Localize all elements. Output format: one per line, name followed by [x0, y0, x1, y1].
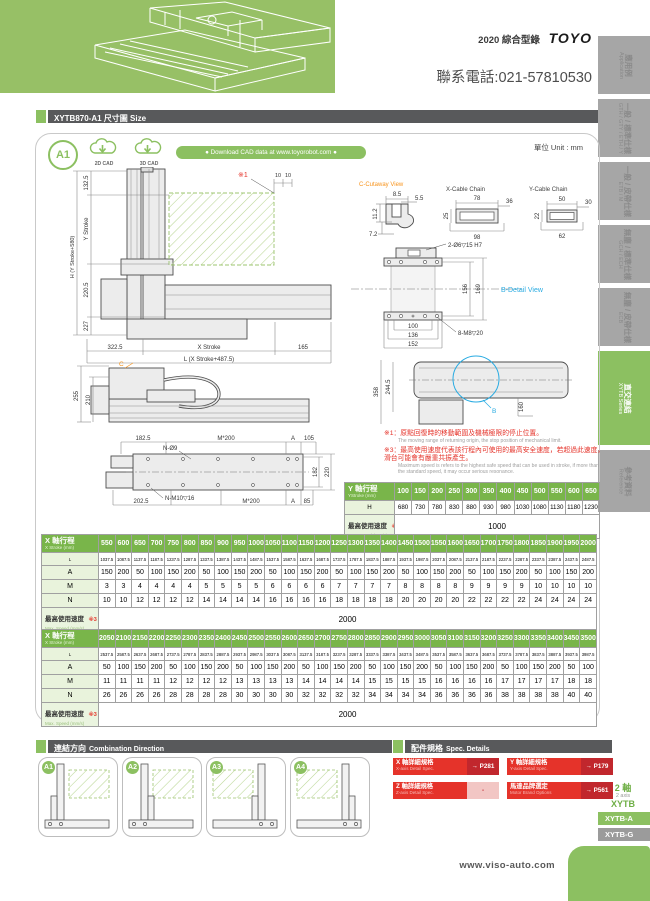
a-dimension-value: 150 — [231, 566, 248, 580]
l-dimension-value: 2387.5 — [547, 553, 564, 566]
n-count-value: 30 — [231, 689, 248, 703]
dim-label: 98 — [474, 235, 481, 241]
dim-label: 156 — [463, 283, 469, 294]
a-dimension-value: 50 — [231, 661, 248, 675]
combination-title-zh: 連結方向 — [54, 744, 86, 753]
dim-label: 10 — [275, 173, 281, 179]
tab-label-zh: 一般 / 皮帶仕樣 — [623, 165, 631, 216]
a-dimension-value: 150 — [132, 661, 149, 675]
l-dimension-value: 2587.5 — [115, 648, 132, 661]
a-dimension-value: 100 — [447, 661, 464, 675]
m-count-value: 13 — [264, 675, 281, 689]
dim-label: 255 — [74, 390, 80, 401]
tab-label-zh: 無塵 / 皮帶仕樣 — [623, 291, 631, 342]
n-count-value: 18 — [364, 594, 381, 608]
l-dimension-value: 1887.5 — [381, 553, 398, 566]
plan-view-drawing: 182.5 M*200 A 105 N-Ø9 182 220 202.5 N-M… — [51, 432, 351, 514]
dim-label: 2-Ø6▽15 H7 — [448, 243, 483, 249]
hero-product-image — [0, 0, 335, 93]
spec-section-header: 配件規格Spec. Details — [405, 740, 612, 753]
l-dimension-value: 1137.5 — [132, 553, 149, 566]
a-dimension-value: 200 — [447, 566, 464, 580]
n-count-value: 20 — [430, 594, 447, 608]
row-label-n: N — [42, 689, 99, 703]
m-count-value: 12 — [215, 675, 232, 689]
m-count-value: 7 — [381, 580, 398, 594]
n-count-value: 26 — [99, 689, 116, 703]
n-count-value: 16 — [298, 594, 315, 608]
m-count-value: 11 — [99, 675, 116, 689]
y-stroke-value: 500 — [531, 483, 548, 501]
l-dimension-value: 2487.5 — [580, 553, 597, 566]
a-dimension-value: 50 — [364, 661, 381, 675]
dim-label: 105 — [304, 436, 315, 442]
x-stroke-value: 1700 — [480, 535, 497, 553]
n-count-value: 26 — [148, 689, 165, 703]
x-stroke-value: 750 — [165, 535, 182, 553]
x-stroke-value: 2250 — [165, 630, 182, 648]
a-dimension-value: 100 — [215, 566, 232, 580]
x-stroke-value: 1800 — [513, 535, 530, 553]
l-dimension-value: 2637.5 — [132, 648, 149, 661]
sidebar-tab-gth[interactable]: 一般 / 標準仕樣GTH / GTY / ETH / Y — [598, 99, 650, 157]
l-dimension-value: 3637.5 — [464, 648, 481, 661]
h-dimension-value: 780 — [429, 501, 446, 515]
a-dimension-value: 50 — [397, 566, 414, 580]
row-label-l: L — [42, 553, 99, 566]
n-count-value: 32 — [314, 689, 331, 703]
y-cable-chain-drawing: Y-Cable Chain 50 30 22 62 — [523, 179, 599, 251]
l-dimension-value: 3437.5 — [397, 648, 414, 661]
cad-3d-download[interactable]: 3D CAD — [129, 138, 169, 167]
a-dimension-value: 50 — [132, 566, 149, 580]
tab-label-zh: 無塵 / 標準仕樣 — [623, 228, 631, 279]
m-count-value: 12 — [181, 675, 198, 689]
h-dimension-value: 1080 — [531, 501, 548, 515]
dim-label: N-Ø9 — [163, 446, 178, 452]
spec-link-z-axis[interactable]: Z 軸詳細規格Z-axis Detail Spec. - — [393, 782, 499, 799]
l-dimension-value: 3037.5 — [264, 648, 281, 661]
m-count-value: 7 — [331, 580, 348, 594]
n-count-value: 12 — [148, 594, 165, 608]
m-count-value: 17 — [497, 675, 514, 689]
m-count-value: 8 — [414, 580, 431, 594]
series-name: XYTB — [600, 799, 646, 810]
m-count-value: 6 — [298, 580, 315, 594]
dimension-panel: A1 2D CAD 3D CAD ● Download CAD data at … — [35, 133, 600, 723]
dim-label: 132.5 — [84, 175, 90, 191]
m-count-value: 3 — [99, 580, 116, 594]
m-count-value: 16 — [447, 675, 464, 689]
l-dimension-value: 1987.5 — [414, 553, 431, 566]
m-count-value: 8 — [430, 580, 447, 594]
h-dimension-value: 1130 — [548, 501, 565, 515]
n-count-value: 16 — [314, 594, 331, 608]
dim-label: 50 — [559, 197, 566, 203]
sidebar-tab-application[interactable]: 應用例Application — [598, 36, 650, 94]
x-stroke-value: 3500 — [580, 630, 597, 648]
m-count-value: 11 — [148, 675, 165, 689]
x-stroke-value: 2850 — [364, 630, 381, 648]
a-dimension-value: 150 — [331, 661, 348, 675]
side-view-drawing: 255 210 C — [51, 360, 341, 432]
n-count-value: 10 — [99, 594, 116, 608]
dim-label: M*200 — [217, 436, 235, 442]
x-stroke-value: 2650 — [298, 630, 315, 648]
dim-label: 210 — [86, 394, 92, 405]
x-stroke-value: 2750 — [331, 630, 348, 648]
x-stroke-value: 3200 — [480, 630, 497, 648]
l-dimension-value: 3587.5 — [447, 648, 464, 661]
m-count-value: 15 — [414, 675, 431, 689]
m-count-value: 5 — [248, 580, 265, 594]
download-cad-banner[interactable]: ● Download CAD data at www.toyorobot.com… — [176, 146, 366, 159]
x-stroke-value: 2900 — [381, 630, 398, 648]
l-dimension-value: 3987.5 — [580, 648, 597, 661]
x-stroke-value: 900 — [215, 535, 232, 553]
l-dimension-value: 3187.5 — [314, 648, 331, 661]
a-dimension-value: 50 — [430, 661, 447, 675]
combination-card-a1[interactable]: A1 — [38, 757, 118, 837]
dim-label: 182 — [313, 466, 319, 477]
x-stroke-table-1: X 軸行程X Stroke (mm) 550600650700750800850… — [41, 534, 597, 632]
n-count-value: 24 — [580, 594, 597, 608]
n-count-value: 16 — [264, 594, 281, 608]
a-dimension-value: 200 — [215, 661, 232, 675]
a-dimension-value: 200 — [347, 661, 364, 675]
x-stroke-value: 1950 — [563, 535, 580, 553]
m-count-value: 9 — [513, 580, 530, 594]
m-count-value: 3 — [115, 580, 132, 594]
n-count-value: 36 — [480, 689, 497, 703]
y-stroke-value: 400 — [497, 483, 514, 501]
dim-label: 160 — [519, 401, 525, 412]
n-count-value: 14 — [215, 594, 232, 608]
cloud-download-icon — [87, 138, 121, 158]
x-stroke-value: 3450 — [563, 630, 580, 648]
page-corner-tab — [568, 846, 650, 901]
spec-link-motor-brand[interactable]: 馬達品牌選定Motor Brand Options → P561 — [507, 782, 613, 799]
dim-label: 100 — [408, 324, 419, 330]
l-dimension-value: 3887.5 — [547, 648, 564, 661]
m-count-value: 16 — [430, 675, 447, 689]
n-count-value: 38 — [497, 689, 514, 703]
l-dimension-value: 1637.5 — [298, 553, 315, 566]
n-count-value: 22 — [464, 594, 481, 608]
note-mark: ※1： — [384, 430, 400, 437]
l-dimension-value: 1337.5 — [198, 553, 215, 566]
n-count-value: 22 — [480, 594, 497, 608]
l-dimension-value: 2737.5 — [165, 648, 182, 661]
row-label-n: N — [42, 594, 99, 608]
l-dimension-value: 1237.5 — [165, 553, 182, 566]
footnote-1: ※1：原點回復時的移動範圍及機械極限的停止位置。 The moving rang… — [384, 430, 606, 444]
h-dimension-value: 1230 — [582, 501, 599, 515]
a-dimension-value: 50 — [264, 566, 281, 580]
m-count-value: 14 — [314, 675, 331, 689]
combination-card-a4[interactable]: A4 — [290, 757, 370, 837]
l-dimension-value: 2437.5 — [563, 553, 580, 566]
dim-label: 10 — [285, 173, 291, 179]
n-count-value: 32 — [347, 689, 364, 703]
n-count-value: 32 — [331, 689, 348, 703]
a-dimension-value: 200 — [314, 566, 331, 580]
a-dimension-value: 100 — [381, 661, 398, 675]
m-count-value: 4 — [132, 580, 149, 594]
dim-label: 182.5 — [135, 436, 151, 442]
a-dimension-value: 150 — [99, 566, 116, 580]
x-stroke-value: 1450 — [397, 535, 414, 553]
l-dimension-value: 1287.5 — [181, 553, 198, 566]
n-count-value: 38 — [530, 689, 547, 703]
y-stroke-value: 300 — [463, 483, 480, 501]
a-dimension-value: 50 — [165, 661, 182, 675]
spec-link-y-axis[interactable]: Y 軸詳細規格Y-axis Detail Spec. → P179 — [507, 758, 613, 775]
n-count-value: 10 — [115, 594, 132, 608]
dim-label: 62 — [559, 234, 566, 240]
x-stroke-value: 2800 — [347, 630, 364, 648]
a-dimension-value: 200 — [148, 661, 165, 675]
a-dimension-value: 200 — [480, 661, 497, 675]
a-dimension-value: 150 — [397, 661, 414, 675]
n-count-value: 40 — [563, 689, 580, 703]
m-count-value: 8 — [397, 580, 414, 594]
tab-label-zh: 一般 / 標準仕樣 — [623, 102, 631, 153]
m-count-value: 16 — [464, 675, 481, 689]
m-count-value: 7 — [347, 580, 364, 594]
dim-label: 7.2 — [369, 232, 378, 238]
m-count-value: 10 — [563, 580, 580, 594]
b-callout-label: B — [492, 408, 496, 415]
x-stroke-value: 1650 — [464, 535, 481, 553]
n-count-value: 36 — [430, 689, 447, 703]
x-stroke-value: 2350 — [198, 630, 215, 648]
x-stroke-value: 2450 — [231, 630, 248, 648]
y-table-header: Y 軸行程YStroke (mm) — [345, 483, 395, 501]
dim-label: 85 — [304, 499, 311, 505]
l-dimension-value: 2287.5 — [513, 553, 530, 566]
dim-label: 169 — [476, 283, 482, 294]
l-dimension-value: 1437.5 — [231, 553, 248, 566]
y-stroke-value: 600 — [565, 483, 582, 501]
catalog-year-label: 2020 綜合型錄 — [478, 35, 540, 46]
spec-link-x-axis[interactable]: X 軸詳細規格X-axis Detail Spec. → P281 — [393, 758, 499, 775]
l-dimension-value: 3287.5 — [347, 648, 364, 661]
b-detail-drawing: 2-Ø6▽15 H7 156 169 100 136 152 8-M8▽20 B… — [346, 242, 601, 367]
x-stroke-value: 850 — [198, 535, 215, 553]
a-dimension-value: 150 — [464, 661, 481, 675]
n-count-value: 22 — [513, 594, 530, 608]
n-count-value: 30 — [281, 689, 298, 703]
a-dimension-value: 200 — [381, 566, 398, 580]
m-count-value: 6 — [264, 580, 281, 594]
a-dimension-value: 200 — [115, 566, 132, 580]
m-count-value: 13 — [248, 675, 265, 689]
combination-card-a2[interactable]: A2 — [122, 757, 202, 837]
x-stroke-value: 1850 — [530, 535, 547, 553]
sidebar-tab-gch[interactable]: 無塵 / 標準仕樣GCH / ECH — [598, 225, 650, 283]
x-stroke-value: 1400 — [381, 535, 398, 553]
x-stroke-value: 3400 — [547, 630, 564, 648]
a-dimension-value: 150 — [165, 566, 182, 580]
h-dimension-value: 680 — [395, 501, 412, 515]
m-count-value: 6 — [281, 580, 298, 594]
m-count-value: 12 — [198, 675, 215, 689]
dim-label: 322.5 — [107, 345, 123, 351]
x-stroke-value: 800 — [181, 535, 198, 553]
n-count-value: 34 — [381, 689, 398, 703]
row-label-a: A — [42, 566, 99, 580]
footnote-3: ※3：最高使用速度代表該行程內可使用的最高安全速度，若超過此速度，滑台可能會有嚴… — [384, 447, 606, 475]
tab-label-en: Application — [616, 52, 623, 79]
page-ref: → P179 — [581, 758, 613, 775]
dim-label: 136 — [408, 333, 419, 339]
m-count-value: 14 — [298, 675, 315, 689]
dim-label: 22 — [535, 212, 541, 219]
n-count-value: 28 — [215, 689, 232, 703]
n-count-value: 36 — [447, 689, 464, 703]
l-dimension-value: 2237.5 — [497, 553, 514, 566]
l-dimension-value: 1687.5 — [314, 553, 331, 566]
series-tab-xytb-g[interactable]: XYTB-G — [598, 828, 650, 841]
dim-label: 78 — [474, 196, 481, 202]
a-dimension-value: 150 — [198, 661, 215, 675]
x-stroke-value: 1500 — [414, 535, 431, 553]
m-count-value: 15 — [381, 675, 398, 689]
l-dimension-value: 3337.5 — [364, 648, 381, 661]
dim-label: 165 — [298, 345, 309, 351]
n-count-value: 28 — [165, 689, 182, 703]
m-count-value: 15 — [364, 675, 381, 689]
tab-label-zh: 參考資料 — [624, 466, 632, 496]
h-dimension-value: 880 — [463, 501, 480, 515]
m-count-value: 5 — [215, 580, 232, 594]
h-dimension-value: 1180 — [565, 501, 582, 515]
y-stroke-value: 250 — [446, 483, 463, 501]
n-count-value: 24 — [530, 594, 547, 608]
n-count-value: 34 — [364, 689, 381, 703]
combination-card-a3[interactable]: A3 — [206, 757, 286, 837]
row-label-m: M — [42, 675, 99, 689]
combination-title-en: Combination Direction — [89, 746, 164, 753]
x-stroke-value: 1150 — [298, 535, 315, 553]
tab-label-en: Reference — [617, 466, 624, 496]
section-accent-square — [36, 740, 46, 753]
m-count-value: 12 — [165, 675, 182, 689]
h-dimension-value: 730 — [412, 501, 429, 515]
l-dimension-value: 1037.5 — [99, 553, 116, 566]
m-count-value: 5 — [231, 580, 248, 594]
dim-label: 8-M8▽20 — [458, 331, 484, 337]
x-stroke-value: 2150 — [132, 630, 149, 648]
a-dimension-value: 200 — [513, 566, 530, 580]
n-count-value: 20 — [414, 594, 431, 608]
toyo-logo: TOYO — [549, 30, 592, 46]
x-stroke-value: 1900 — [547, 535, 564, 553]
a-dimension-value: 50 — [198, 566, 215, 580]
m-count-value: 10 — [547, 580, 564, 594]
y-stroke-value: 100 — [395, 483, 412, 501]
n-count-value: 18 — [347, 594, 364, 608]
y-stroke-value: 350 — [480, 483, 497, 501]
c-section-label: C — [119, 361, 124, 368]
page-ref: → P281 — [467, 758, 499, 775]
n-count-value: 24 — [563, 594, 580, 608]
x-stroke-value: 2300 — [181, 630, 198, 648]
dim-label: 30 — [585, 200, 592, 206]
a-dimension-value: 200 — [181, 566, 198, 580]
sidebar-tab-etb[interactable]: 一般 / 皮帶仕樣ETB / M — [598, 162, 650, 220]
m-count-value: 14 — [347, 675, 364, 689]
l-dimension-value: 1187.5 — [148, 553, 165, 566]
l-dimension-value: 1537.5 — [264, 553, 281, 566]
max-speed-label: 最高使用速度 ※3Max. Speed (mm/s) — [42, 608, 99, 632]
m-count-value: 9 — [480, 580, 497, 594]
n-count-value: 34 — [397, 689, 414, 703]
m-count-value: 10 — [580, 580, 597, 594]
series-tab-xytb-a[interactable]: XYTB-A — [598, 812, 650, 825]
n-count-value: 26 — [132, 689, 149, 703]
dim-label: 220.5 — [84, 282, 90, 298]
l-dimension-value: 2787.5 — [181, 648, 198, 661]
l-dimension-value: 2087.5 — [447, 553, 464, 566]
n-count-value: 22 — [497, 594, 514, 608]
n-count-value: 40 — [580, 689, 597, 703]
m-count-value: 18 — [580, 675, 597, 689]
sidebar-tab-ecb[interactable]: 無塵 / 皮帶仕樣ECB — [598, 288, 650, 346]
m-count-value: 17 — [513, 675, 530, 689]
cutaway-title: C-Cutaway View — [359, 182, 404, 188]
dim-label: 11.2 — [373, 208, 379, 220]
a-dimension-value: 100 — [314, 661, 331, 675]
n-count-value: 24 — [547, 594, 564, 608]
row-label-m: M — [42, 580, 99, 594]
x-stroke-value: 950 — [231, 535, 248, 553]
x-stroke-value: 1000 — [248, 535, 265, 553]
cloud-download-icon — [132, 138, 166, 158]
l-dimension-value: 2837.5 — [198, 648, 215, 661]
n-count-value: 18 — [381, 594, 398, 608]
y-stroke-value: 650 — [582, 483, 599, 501]
h-dimension-value: 830 — [446, 501, 463, 515]
work-envelope-hatch — [169, 193, 274, 265]
m-count-value: 9 — [497, 580, 514, 594]
l-dimension-value: 2187.5 — [480, 553, 497, 566]
x-stroke-value: 2100 — [115, 630, 132, 648]
l-dimension-value: 1787.5 — [347, 553, 364, 566]
x-stroke-value: 2200 — [148, 630, 165, 648]
x-stroke-value: 1350 — [364, 535, 381, 553]
n-count-value: 12 — [132, 594, 149, 608]
l-dimension-value: 3787.5 — [513, 648, 530, 661]
title-accent-square — [36, 110, 46, 123]
n-count-value: 14 — [231, 594, 248, 608]
n-count-value: 34 — [414, 689, 431, 703]
dim-label: A — [291, 436, 295, 442]
y-stroke-value: 150 — [412, 483, 429, 501]
x-stroke-value: 2950 — [397, 630, 414, 648]
page-title: XYTB870-A1 尺寸圖 Size — [54, 114, 146, 123]
x-stroke-value: 1050 — [264, 535, 281, 553]
x-stroke-value: 3300 — [513, 630, 530, 648]
y-stroke-value: 450 — [514, 483, 531, 501]
page-title-bar: XYTB870-A1 尺寸圖 Size — [48, 110, 598, 123]
n-count-value: 16 — [281, 594, 298, 608]
m-count-value: 11 — [132, 675, 149, 689]
cad-2d-download[interactable]: 2D CAD — [84, 138, 124, 167]
note-text-en: Maximum speed is refers to the highest s… — [384, 463, 606, 475]
m-count-value: 4 — [148, 580, 165, 594]
